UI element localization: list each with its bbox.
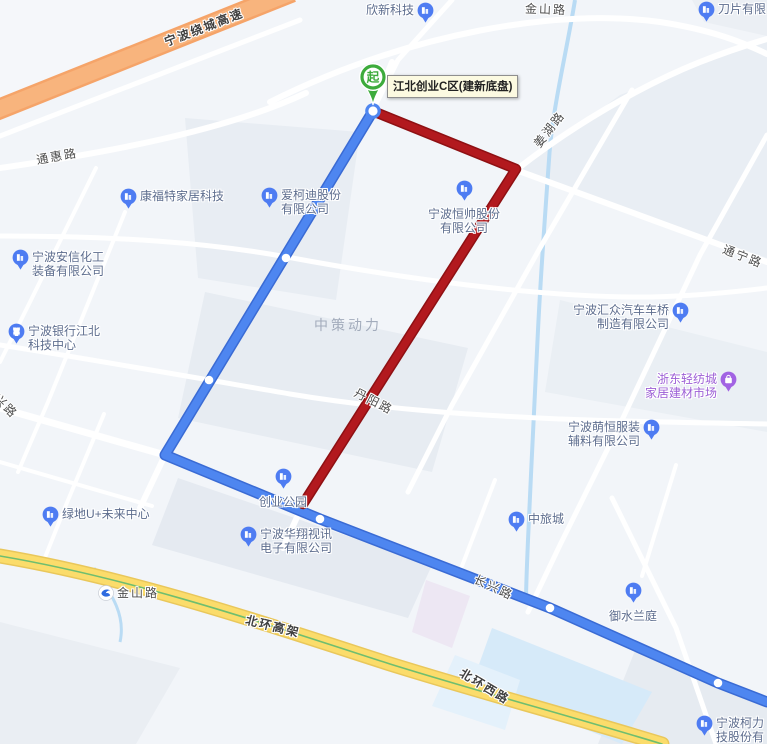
poi-zhonglvcheng[interactable]: 中旅城 (508, 512, 564, 535)
poi-label: 宁波银行江北科技中心 (28, 324, 100, 352)
poi-ningbo-bank-jiangbei[interactable]: ¥宁波银行江北科技中心 (8, 324, 100, 352)
building-pin-icon (698, 1, 715, 25)
poi-label: 宁波安信化工装备有限公司 (32, 250, 104, 278)
poi-label: 绿地U+未来中心 (62, 507, 150, 521)
poi-label-line: 宁波华翔视讯 (260, 527, 332, 541)
poi-label-line: 电子有限公司 (260, 541, 332, 555)
poi-aikedi-gufen[interactable]: 爱柯迪股份有限公司 (261, 188, 341, 216)
poi-label: 欣新科技 (366, 3, 414, 17)
poi-label-line: 有限公司 (281, 202, 341, 216)
poi-xinxin-keji[interactable]: 欣新科技 (366, 3, 434, 26)
poi-yushui-lanting[interactable]: 御水兰庭 (609, 583, 657, 623)
poi-label-line: 绿地U+未来中心 (62, 507, 150, 521)
poi-label-line: 刀片有限 (718, 2, 766, 16)
poi-label: 宁波萌恒服装辅料有限公司 (568, 420, 640, 448)
poi-chuangye-park[interactable]: 创业公园 (259, 469, 307, 509)
poi-label: 宁波柯力技股份有 (716, 716, 764, 744)
poi-label-line: 康福特家居科技 (140, 189, 224, 203)
poi-mengheng-fuzhuang[interactable]: 宁波萌恒服装辅料有限公司 (568, 420, 660, 448)
svg-text:¥: ¥ (14, 327, 20, 338)
poi-label-line: 中旅城 (528, 512, 564, 526)
poi-label-line: 御水兰庭 (609, 609, 657, 623)
start-marker-glyph: 起 (366, 70, 380, 85)
poi-label-line: 宁波银行江北 (28, 324, 100, 338)
building-pin-icon (672, 302, 689, 326)
poi-label-line: 有限公司 (440, 221, 488, 235)
map-canvas[interactable]: 欣新科技刀片有限康福特家居科技爱柯迪股份有限公司宁波安信化工装备有限公司¥宁波银… (0, 0, 767, 744)
building-pin-icon (643, 419, 660, 443)
poi-label-line: 金山路 (117, 586, 159, 600)
poi-label-line: 宁波汇众汽车车桥 (573, 303, 669, 317)
poi-label-line: 辅料有限公司 (568, 434, 640, 448)
building-pin-icon (120, 188, 137, 212)
poi-label: 宁波华翔视讯电子有限公司 (260, 527, 332, 555)
poi-label-line: 装备有限公司 (32, 264, 104, 278)
poi-huizhong-qiche[interactable]: 宁波汇众汽车车桥制造有限公司 (573, 303, 689, 331)
building-pin-icon (261, 187, 278, 211)
poi-label-line: 技股份有 (716, 730, 764, 744)
poi-label-line: 科技中心 (28, 338, 100, 352)
poi-label-line: 爱柯迪股份 (281, 188, 341, 202)
poi-label-line: 欣新科技 (366, 3, 414, 17)
building-pin-icon (12, 249, 29, 273)
poi-huaxiang-shixun[interactable]: 宁波华翔视讯电子有限公司 (240, 527, 332, 555)
start-tooltip: 江北创业C区(建新底盘) (387, 75, 518, 98)
poi-label: 康福特家居科技 (140, 189, 224, 203)
bank-pin-icon: ¥ (8, 323, 25, 347)
building-pin-icon (240, 526, 257, 550)
poi-label-line: 创业公园 (259, 495, 307, 509)
poi-label-line: 制造有限公司 (597, 317, 669, 331)
poi-label: 宁波恒帅股份有限公司 (428, 207, 500, 235)
poi-label: 浙东轻纺城家居建材市场 (645, 372, 717, 400)
poi-label: 刀片有限 (718, 2, 766, 16)
building-pin-icon (455, 180, 472, 204)
poi-label-line: 宁波安信化工 (32, 250, 104, 264)
poi-label: 爱柯迪股份有限公司 (281, 188, 341, 216)
poi-label: 宁波汇众汽车车桥制造有限公司 (573, 303, 669, 331)
building-pin-icon (624, 582, 641, 606)
start-marker[interactable]: 起 (356, 62, 390, 108)
building-pin-icon (417, 2, 434, 26)
poi-label: 创业公园 (259, 495, 307, 509)
metro-station-icon (98, 585, 114, 604)
area-label-zhongce: 中策动力 (314, 315, 382, 335)
shopping-bag-pin-icon (720, 371, 737, 395)
poi-zhedong-qingfangcheng[interactable]: 浙东轻纺城家居建材市场 (645, 372, 737, 400)
poi-ningbo-keli[interactable]: 宁波柯力技股份有 (696, 716, 764, 744)
building-pin-icon (508, 511, 525, 535)
building-pin-icon (696, 715, 713, 739)
poi-hengshuai-gufen[interactable]: 宁波恒帅股份有限公司 (428, 181, 500, 235)
road-label-jinshan-lu-top: 金山路 (525, 0, 568, 18)
poi-label-line: 宁波柯力 (716, 716, 764, 730)
poi-label: 中旅城 (528, 512, 564, 526)
poi-label-line: 家居建材市场 (645, 386, 717, 400)
poi-label: 御水兰庭 (609, 609, 657, 623)
poi-label-line: 宁波萌恒服装 (568, 420, 640, 434)
poi-lvdi-u-center[interactable]: 绿地U+未来中心 (42, 507, 150, 530)
poi-kangfute-jiaju[interactable]: 康福特家居科技 (120, 189, 224, 212)
poi-label-line: 宁波恒帅股份 (428, 207, 500, 221)
poi-jinshan-lu-metro[interactable]: 金山路 (98, 586, 159, 604)
poi-label: 金山路 (117, 586, 159, 600)
building-pin-icon (42, 506, 59, 530)
poi-anxin-huagong[interactable]: 宁波安信化工装备有限公司 (12, 250, 104, 278)
poi-label-line: 浙东轻纺城 (657, 372, 717, 386)
poi-daopian-youxian[interactable]: 刀片有限 (698, 2, 766, 25)
building-pin-icon (274, 468, 291, 492)
